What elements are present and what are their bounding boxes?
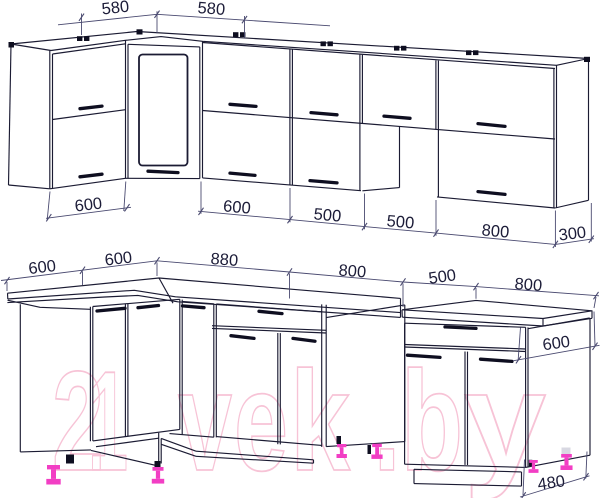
svg-text:500: 500 (313, 205, 342, 225)
svg-text:.: . (374, 342, 400, 498)
svg-text:k: k (290, 342, 351, 498)
svg-text:800: 800 (481, 221, 510, 241)
svg-text:b: b (401, 342, 463, 498)
svg-text:800: 800 (338, 262, 367, 282)
svg-text:600: 600 (541, 333, 571, 355)
svg-text:880: 880 (210, 250, 239, 270)
svg-text:v: v (178, 342, 232, 498)
svg-text:480: 480 (536, 472, 566, 494)
svg-text:1: 1 (88, 342, 128, 498)
svg-text:y: y (464, 342, 546, 498)
svg-text:500: 500 (386, 212, 415, 232)
svg-text:500: 500 (427, 266, 457, 288)
svg-text:600: 600 (27, 257, 57, 278)
svg-text:600: 600 (74, 194, 104, 215)
svg-text:600: 600 (222, 197, 251, 217)
svg-text:600: 600 (104, 248, 134, 269)
svg-text:300: 300 (558, 223, 588, 244)
svg-text:580: 580 (101, 0, 130, 18)
svg-text:800: 800 (514, 275, 543, 295)
svg-text:580: 580 (197, 0, 226, 19)
